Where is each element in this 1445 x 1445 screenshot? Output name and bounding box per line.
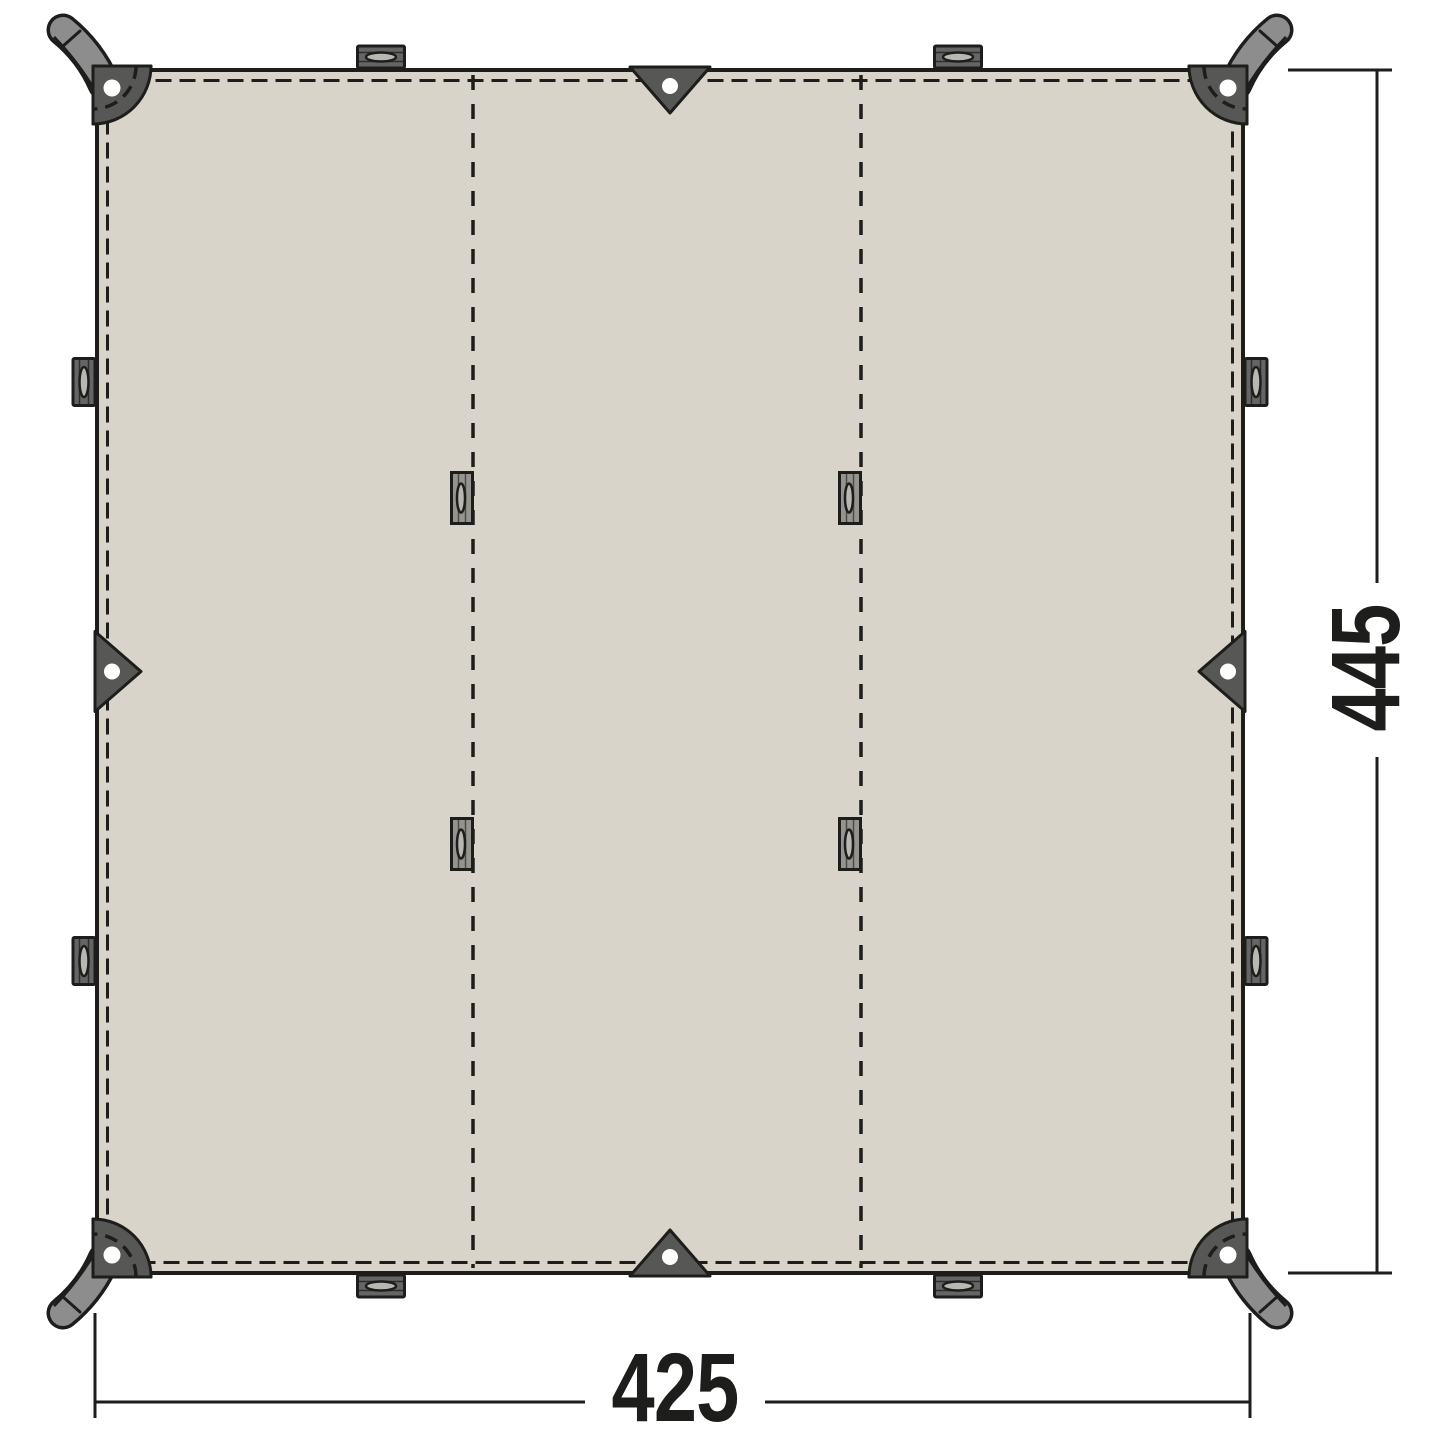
corner-grommet (1220, 1247, 1237, 1264)
webbing-loop-top-right (935, 46, 982, 68)
tarp-diagram-canvas (0, 0, 1445, 1445)
seam-loop-left-upper (452, 473, 473, 524)
corner-grommet (1220, 80, 1237, 97)
webbing-loop-right-upper (1245, 359, 1267, 406)
webbing-loop-left-upper (73, 359, 95, 406)
webbing-loop-left-lower (73, 938, 95, 985)
tarp-dimension-diagram: 425 445 (0, 0, 1445, 1445)
seam-loop-right-lower (840, 819, 861, 870)
width-dimension-label: 425 (593, 1338, 756, 1438)
seam-loop-right-upper (840, 473, 861, 524)
webbing-loop-top-left (358, 46, 405, 68)
height-dimension-label: 445 (1316, 586, 1416, 749)
corner-grommet (104, 1247, 121, 1264)
webbing-loop-right-lower (1245, 938, 1267, 985)
corner-grommet (104, 80, 121, 97)
seam-loop-left-lower (452, 819, 473, 870)
webbing-loop-bottom-right (935, 1275, 982, 1297)
tarp-canopy (97, 70, 1243, 1273)
webbing-loop-bottom-left (358, 1275, 405, 1297)
